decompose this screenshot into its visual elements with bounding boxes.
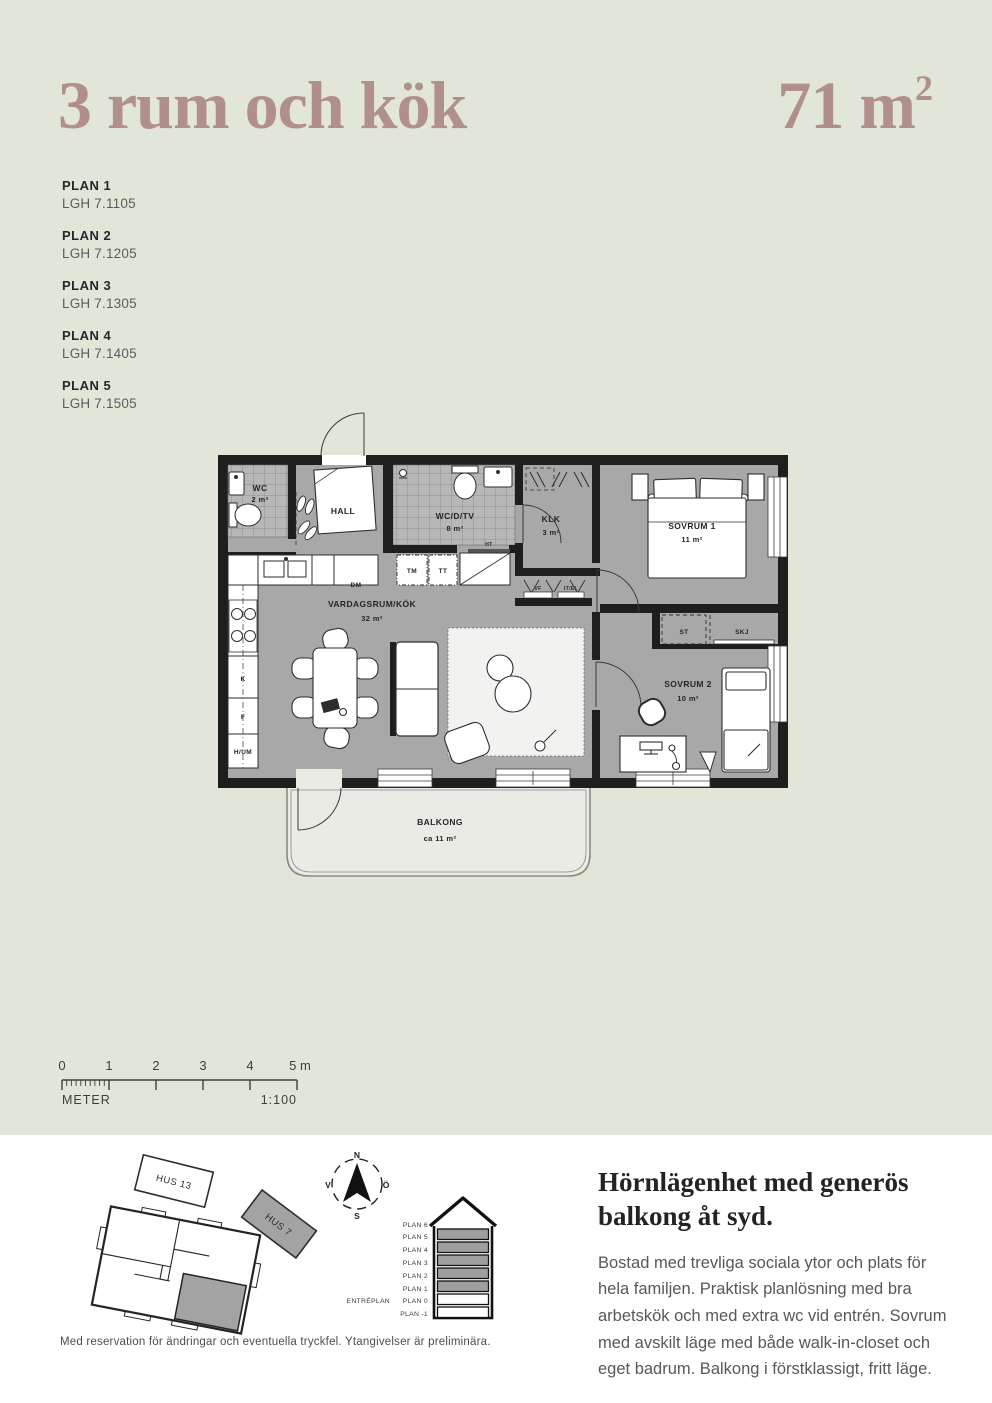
hus13-building: HUS 13 [135, 1155, 214, 1207]
site-plan: HUS 13 HUS 7 [55, 1148, 325, 1343]
label-tt: TT [439, 568, 448, 575]
label-dm: DM [351, 582, 362, 589]
room-label-klk: KLK [542, 514, 561, 524]
room-label-sovrum1: SOVRUM 1 [668, 521, 716, 531]
plan-label: PLAN 3 [62, 278, 137, 293]
plan-label: PLAN 2 [62, 228, 137, 243]
room-area-sovrum1: 11 m² [681, 535, 702, 544]
label-st: ST [679, 629, 688, 636]
scale-tick-2: 2 [152, 1058, 159, 1073]
scale-tick-3: 3 [199, 1058, 206, 1073]
scale-tick-4: 4 [246, 1058, 253, 1073]
coffee-table-icon [495, 676, 531, 712]
disclaimer-text: Med reservation för ändringar och eventu… [60, 1336, 491, 1348]
floorplan-drawing: WC 2 m² HALL WC/D/TV 8 m² KLK 3 m² SOVRU… [215, 405, 793, 885]
area-value: 71 m [777, 67, 915, 143]
area-exponent: 2 [915, 68, 932, 108]
room-area-wc: 2 m² [251, 495, 268, 504]
plan-lgh: LGH 7.1205 [62, 246, 137, 261]
floor-lamp-icon [535, 741, 545, 751]
label-f: F [241, 714, 245, 721]
scale-bar: 0 1 2 3 4 5 m METER 1:100 [55, 1050, 315, 1110]
elevation-floor-label: PLAN 5 [403, 1234, 428, 1241]
total-area: 71 m2 [777, 66, 932, 145]
description-block: Hörnlägenhet med generös balkong åt syd.… [598, 1166, 950, 1383]
scale-tick-0: 0 [58, 1058, 65, 1073]
bed-single-icon [722, 668, 770, 772]
description-body: Bostad med trevliga sociala ytor och pla… [598, 1250, 950, 1384]
scale-tick-5: 5 m [289, 1058, 311, 1073]
plan-list-item: PLAN 3LGH 7.1305 [62, 278, 137, 311]
room-label-living: VARDAGSRUM/KÖK [328, 599, 417, 609]
plan-label: PLAN 1 [62, 178, 137, 193]
room-label-bathroom: WC/D/TV [436, 511, 475, 521]
plan-lgh: LGH 7.1405 [62, 346, 137, 361]
floor-bands [438, 1229, 489, 1318]
room-area-sovrum2: 10 m² [677, 694, 699, 703]
rug [442, 628, 584, 766]
label-skj: SKJ [735, 629, 749, 636]
room-label-sovrum2: SOVRUM 2 [664, 679, 712, 689]
room-area-living: 32 m² [361, 614, 383, 623]
elevation-floor-label: PLAN -1 [400, 1311, 428, 1318]
room-area-balcony: ca 11 m² [424, 834, 457, 843]
room-label-balcony: BALKONG [417, 817, 463, 827]
entry-floor-label: ENTRÉPLAN [347, 1296, 391, 1305]
plan-list: PLAN 1LGH 7.1105 PLAN 2LGH 7.1205 PLAN 3… [62, 178, 137, 428]
room-area-bathroom: 8 m² [446, 524, 463, 533]
plan-lgh: LGH 7.1105 [62, 196, 137, 211]
plan-label: PLAN 4 [62, 328, 137, 343]
elevation-floor-label: PLAN 6 [403, 1222, 428, 1229]
label-ht: HT [485, 542, 492, 548]
scale-ratio: 1:100 [261, 1093, 297, 1107]
sofa [390, 642, 438, 736]
compass-west: V [325, 1180, 331, 1190]
scale-unit-label: METER [62, 1093, 111, 1107]
plan-list-item: PLAN 5LGH 7.1505 [62, 378, 137, 411]
balcony-outline [287, 786, 590, 876]
elevation-floor-label: PLAN 4 [403, 1247, 428, 1254]
elevation-floor-label: PLAN 2 [403, 1273, 428, 1280]
plan-list-item: PLAN 2LGH 7.1205 [62, 228, 137, 261]
room-label-wc: WC [253, 483, 268, 493]
scale-ticks [62, 1080, 297, 1090]
plan-list-item: PLAN 1LGH 7.1105 [62, 178, 137, 211]
description-heading: Hörnlägenhet med generös balkong åt syd. [598, 1166, 950, 1234]
label-k: K [240, 676, 245, 683]
plan-label: PLAN 5 [62, 378, 137, 393]
main-building-footprint [85, 1200, 267, 1339]
room-area-klk: 3 m² [542, 528, 559, 537]
elevation-floor-label: PLAN 1 [403, 1286, 428, 1293]
page-title: 3 rum och kök [58, 66, 466, 145]
building-elevation: PLAN 6 PLAN 5 PLAN 4 PLAN 3 PLAN 2 PLAN … [335, 1190, 510, 1325]
plan-list-item: PLAN 4LGH 7.1405 [62, 328, 137, 361]
compass-north: N [354, 1150, 360, 1160]
label-vf: VF [534, 586, 541, 592]
label-itel: IT/EL [564, 586, 578, 592]
plan-lgh: LGH 7.1505 [62, 396, 137, 411]
label-hum: H/UM [234, 749, 252, 756]
elevation-floor-label: PLAN 0 [403, 1298, 428, 1305]
compass-east: Ö [383, 1180, 390, 1190]
elevation-floor-label: PLAN 3 [403, 1260, 428, 1267]
scale-tick-1: 1 [105, 1058, 112, 1073]
label-tm: TM [407, 568, 417, 575]
room-label-hall: HALL [331, 506, 355, 516]
plan-lgh: LGH 7.1305 [62, 296, 137, 311]
